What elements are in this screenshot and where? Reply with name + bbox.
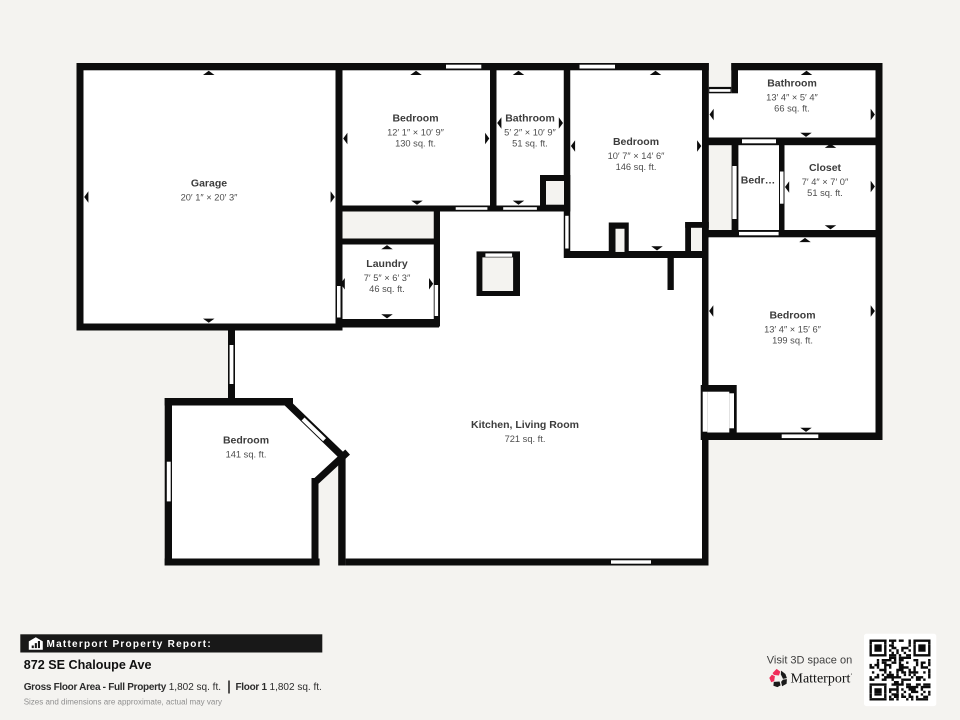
svg-text:146 sq. ft.: 146 sq. ft. bbox=[616, 162, 657, 172]
svg-text:20′ 1″ × 20′ 3″: 20′ 1″ × 20′ 3″ bbox=[181, 192, 239, 202]
svg-text:Gross Floor Area - Full Proper: Gross Floor Area - Full Property 1,802 s… bbox=[24, 682, 221, 693]
svg-text:Bedroom: Bedroom bbox=[223, 435, 269, 447]
svg-text:Bedroom: Bedroom bbox=[613, 136, 659, 148]
svg-text:872 SE Chaloupe Ave: 872 SE Chaloupe Ave bbox=[24, 658, 152, 672]
svg-text:Bedr…: Bedr… bbox=[741, 175, 775, 187]
svg-text:Bathroom: Bathroom bbox=[767, 78, 817, 90]
svg-text:13′ 4″ × 5′ 4″: 13′ 4″ × 5′ 4″ bbox=[766, 92, 818, 102]
svg-text:Floor 1 1,802 sq. ft.: Floor 1 1,802 sq. ft. bbox=[236, 682, 322, 693]
svg-text:13′ 4″ × 15′ 6″: 13′ 4″ × 15′ 6″ bbox=[764, 324, 822, 334]
svg-text:51 sq. ft.: 51 sq. ft. bbox=[512, 139, 548, 149]
svg-text:Matterport Property Report:: Matterport Property Report: bbox=[47, 639, 212, 650]
svg-text:12′ 1″ × 10′ 9″: 12′ 1″ × 10′ 9″ bbox=[387, 127, 445, 137]
svg-text:10′ 7″ × 14′ 6″: 10′ 7″ × 14′ 6″ bbox=[608, 151, 666, 161]
svg-text:199 sq. ft.: 199 sq. ft. bbox=[772, 336, 813, 346]
svg-text:Sizes and dimensions are appro: Sizes and dimensions are approximate, ac… bbox=[24, 698, 222, 707]
svg-text:Bedroom: Bedroom bbox=[769, 310, 815, 322]
svg-text:Matterport’: Matterport’ bbox=[791, 672, 853, 687]
svg-text:7′ 5″ × 6′ 3″: 7′ 5″ × 6′ 3″ bbox=[364, 273, 411, 283]
svg-text:46 sq. ft.: 46 sq. ft. bbox=[369, 284, 405, 294]
svg-text:Visit 3D space on: Visit 3D space on bbox=[767, 655, 852, 667]
svg-text:7′ 4″ × 7′ 0″: 7′ 4″ × 7′ 0″ bbox=[802, 177, 849, 187]
svg-text:130 sq. ft.: 130 sq. ft. bbox=[395, 139, 436, 149]
svg-text:Kitchen, Living Room: Kitchen, Living Room bbox=[471, 419, 579, 431]
svg-text:5′ 2″ × 10′ 9″: 5′ 2″ × 10′ 9″ bbox=[504, 127, 556, 137]
svg-text:Bathroom: Bathroom bbox=[505, 113, 555, 125]
svg-text:721 sq. ft.: 721 sq. ft. bbox=[505, 434, 546, 444]
svg-text:66 sq. ft.: 66 sq. ft. bbox=[774, 104, 810, 114]
svg-text:Garage: Garage bbox=[191, 178, 227, 190]
svg-text:Bedroom: Bedroom bbox=[392, 113, 438, 125]
svg-text:Closet: Closet bbox=[809, 162, 842, 174]
svg-text:141 sq. ft.: 141 sq. ft. bbox=[226, 449, 267, 459]
svg-text:51 sq. ft.: 51 sq. ft. bbox=[807, 188, 843, 198]
svg-text:Laundry: Laundry bbox=[366, 258, 408, 270]
